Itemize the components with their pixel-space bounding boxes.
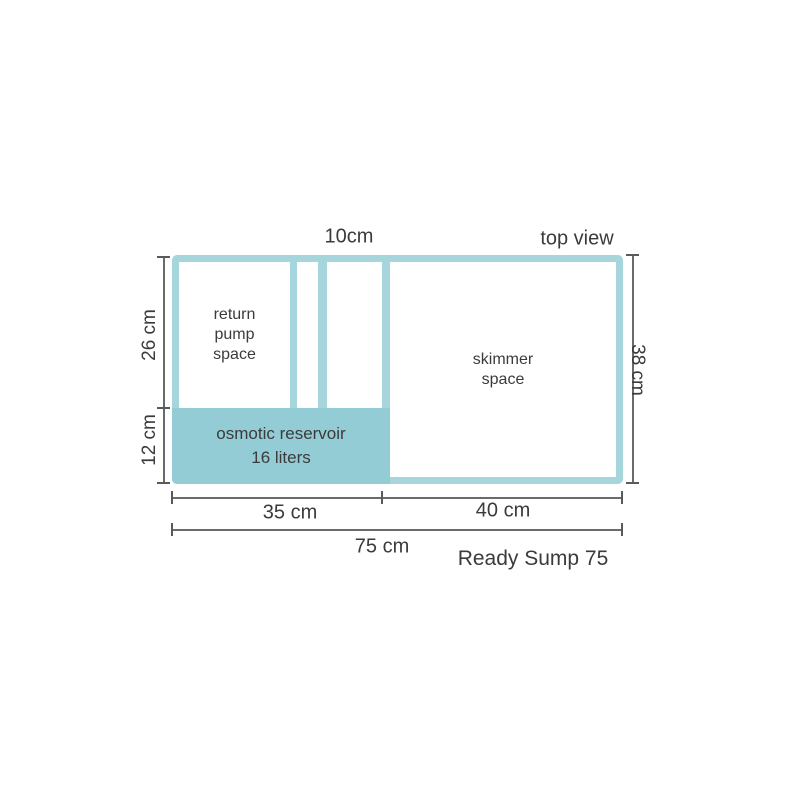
- dim-label-channel-width: 10cm: [325, 226, 374, 249]
- dim-label-left-section-width: 35 cm: [263, 502, 317, 525]
- dim-tick: [621, 491, 623, 504]
- dim-tick: [157, 482, 170, 484]
- dim-tick: [171, 523, 173, 536]
- osmotic-reservoir-area: osmotic reservoir 16 liters: [172, 408, 390, 484]
- sump-top-view-diagram: 10cm top view return pump space skimmer …: [0, 0, 800, 800]
- return-pump-label-line2: pump: [214, 325, 254, 345]
- view-label: top view: [540, 228, 613, 251]
- dim-label-reservoir-depth: 12 cm: [139, 414, 161, 466]
- dim-tick: [621, 523, 623, 536]
- return-pump-label: return pump space: [179, 262, 290, 408]
- skimmer-label: skimmer space: [390, 262, 616, 477]
- dim-tick: [157, 256, 170, 258]
- dim-line-bottom-sections: [172, 497, 623, 499]
- dim-tick: [626, 482, 639, 484]
- dim-tick: [171, 491, 173, 504]
- product-name-label: Ready Sump 75: [458, 547, 609, 571]
- overflow-channel-1: [297, 262, 318, 408]
- skimmer-label-line2: space: [482, 370, 525, 390]
- dim-label-return-section-depth: 26 cm: [139, 309, 161, 361]
- sump-outline: return pump space skimmer space osmotic …: [172, 255, 623, 484]
- skimmer-label-line1: skimmer: [473, 350, 533, 370]
- return-pump-label-line3: space: [213, 345, 256, 365]
- dim-label-total-depth: 38 cm: [626, 344, 648, 396]
- overflow-channel-2: [327, 262, 382, 408]
- dim-label-total-width: 75 cm: [355, 536, 409, 559]
- dim-tick: [157, 407, 170, 409]
- dim-label-skimmer-section-width: 40 cm: [476, 500, 530, 523]
- return-pump-compartment: return pump space: [179, 262, 290, 408]
- osmotic-reservoir-label-line1: osmotic reservoir: [216, 422, 345, 446]
- osmotic-reservoir-label-line2: 16 liters: [251, 446, 311, 470]
- return-pump-label-line1: return: [214, 305, 256, 325]
- dim-line-bottom-total: [172, 529, 623, 531]
- skimmer-compartment: skimmer space: [390, 262, 616, 477]
- dim-tick: [626, 254, 639, 256]
- dim-tick: [381, 491, 383, 504]
- dim-line-left: [163, 257, 165, 484]
